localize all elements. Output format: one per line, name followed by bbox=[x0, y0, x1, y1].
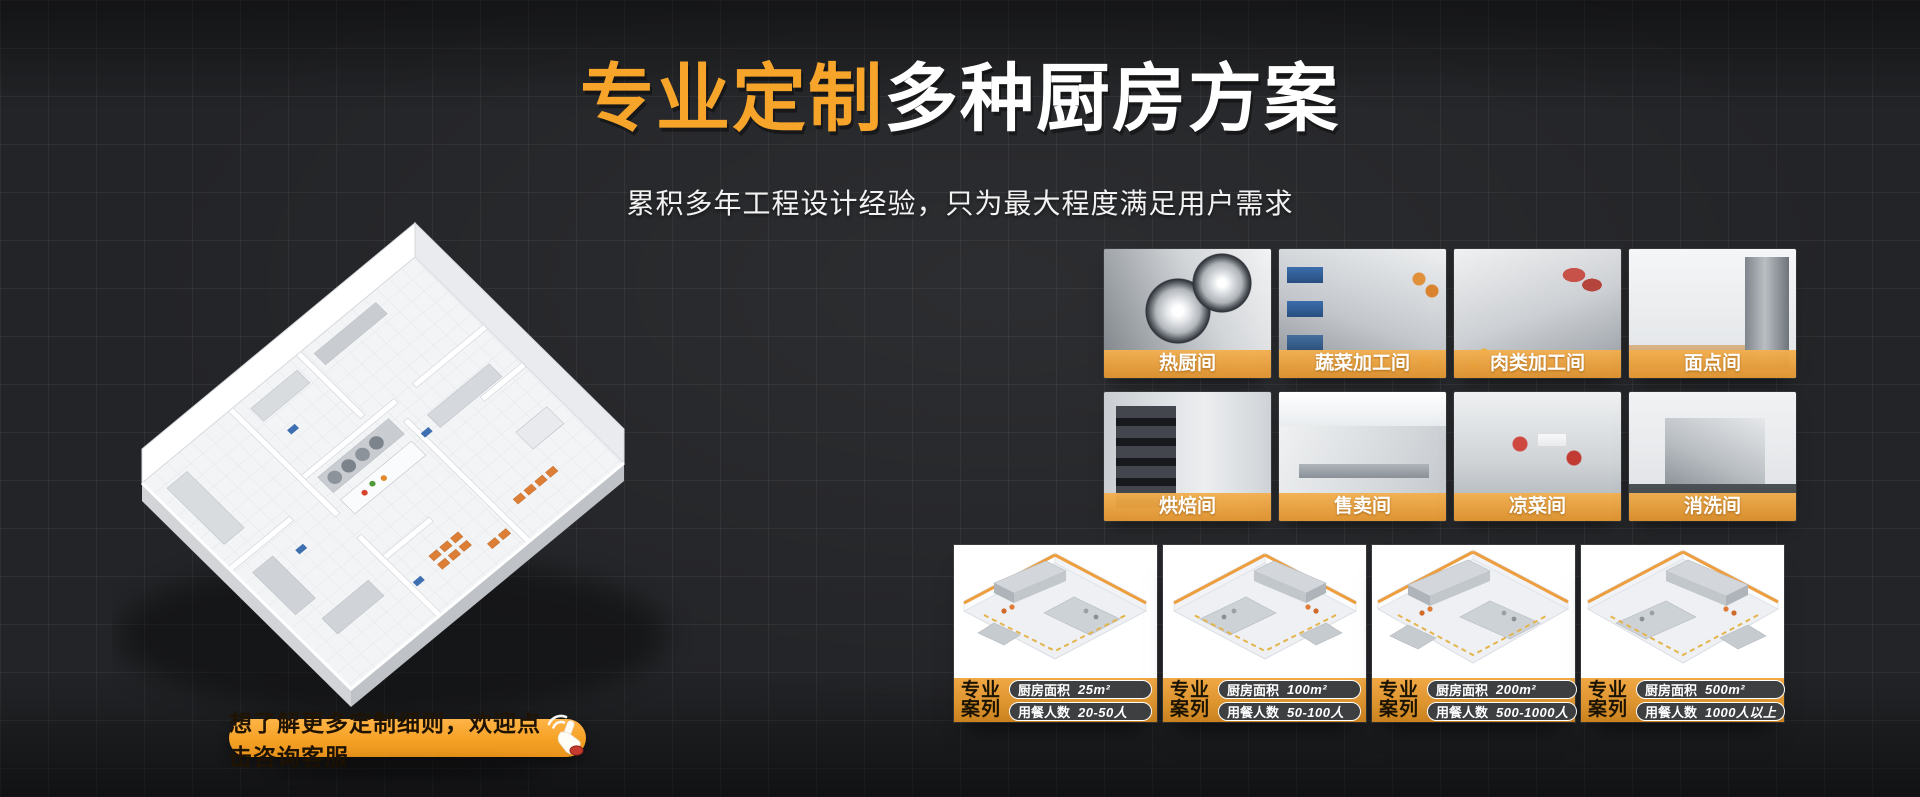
case-diners-pill: 用餐人数500-1000人 bbox=[1427, 702, 1577, 721]
room-card-sales: 售卖间 bbox=[1279, 392, 1446, 521]
room-card-cold-dish: 凉菜间 bbox=[1454, 392, 1621, 521]
room-card-meat: 肉类加工间 bbox=[1454, 249, 1621, 378]
case-tag: 专业 案列 bbox=[1379, 681, 1423, 719]
room-card-washing: 消洗间 bbox=[1629, 392, 1796, 521]
kitchen-floorplan-3d bbox=[112, 210, 812, 730]
page-title: 专业定制多种厨房方案 bbox=[0, 58, 1920, 139]
case-diners-pill: 用餐人数1000人以上 bbox=[1636, 702, 1785, 721]
case-diners-pill: 用餐人数50-100人 bbox=[1218, 702, 1361, 721]
room-label: 凉菜间 bbox=[1454, 493, 1621, 521]
hero-banner: 专业定制多种厨房方案 累积多年工程设计经验，只为最大程度满足用户需求 bbox=[0, 0, 1920, 797]
case-info-bar: 专业 案列 厨房面积100m² 用餐人数50-100人 bbox=[1163, 678, 1366, 722]
case-card-row: 专业 案列 厨房面积25m² 用餐人数20-50人 bbox=[954, 545, 1784, 722]
case-card-500m2: 专业 案列 厨房面积500m² 用餐人数1000人以上 bbox=[1581, 545, 1784, 722]
case-card-25m2: 专业 案列 厨房面积25m² 用餐人数20-50人 bbox=[954, 545, 1157, 722]
case-area-pill: 厨房面积200m² bbox=[1427, 680, 1577, 699]
case-photo bbox=[1581, 545, 1784, 678]
case-area-pill: 厨房面积500m² bbox=[1636, 680, 1785, 699]
case-photo bbox=[954, 545, 1157, 678]
case-info-bar: 专业 案列 厨房面积25m² 用餐人数20-50人 bbox=[954, 678, 1157, 722]
room-card-hot-kitchen: 热厨间 bbox=[1104, 249, 1271, 378]
case-tag: 专业 案列 bbox=[1588, 681, 1632, 719]
room-label: 热厨间 bbox=[1104, 350, 1271, 378]
case-diners-pill: 用餐人数20-50人 bbox=[1009, 702, 1152, 721]
case-photo bbox=[1163, 545, 1366, 678]
case-card-100m2: 专业 案列 厨房面积100m² 用餐人数50-100人 bbox=[1163, 545, 1366, 722]
case-card-200m2: 专业 案列 厨房面积200m² 用餐人数500-1000人 bbox=[1372, 545, 1575, 722]
room-label: 蔬菜加工间 bbox=[1279, 350, 1446, 378]
consult-cta-button[interactable]: 想了解更多定制细则，欢迎点击咨询客服 bbox=[229, 719, 586, 757]
room-label: 面点间 bbox=[1629, 350, 1796, 378]
room-card-vegetable: 蔬菜加工间 bbox=[1279, 249, 1446, 378]
case-info-bar: 专业 案列 厨房面积500m² 用餐人数1000人以上 bbox=[1581, 678, 1784, 722]
room-label: 消洗间 bbox=[1629, 493, 1796, 521]
room-card-grid: 热厨间 蔬菜加工间 肉类加工间 面点间 烘焙间 售卖间 凉菜间 消洗间 bbox=[1104, 249, 1796, 521]
floorplan-illustration bbox=[112, 210, 812, 745]
room-label: 售卖间 bbox=[1279, 493, 1446, 521]
page-title-rest: 多种厨房方案 bbox=[884, 57, 1340, 140]
case-area-pill: 厨房面积100m² bbox=[1218, 680, 1361, 699]
case-photo bbox=[1372, 545, 1575, 678]
room-card-pastry: 面点间 bbox=[1629, 249, 1796, 378]
room-label: 肉类加工间 bbox=[1454, 350, 1621, 378]
room-card-baking: 烘焙间 bbox=[1104, 392, 1271, 521]
consult-cta-label: 想了解更多定制细则，欢迎点击咨询客服 bbox=[229, 704, 586, 772]
case-area-pill: 厨房面积25m² bbox=[1009, 680, 1152, 699]
case-tag: 专业 案列 bbox=[1170, 681, 1214, 719]
click-hand-icon bbox=[538, 707, 590, 759]
page-title-highlight: 专业定制 bbox=[580, 57, 884, 140]
case-tag: 专业 案列 bbox=[961, 681, 1005, 719]
room-label: 烘焙间 bbox=[1104, 493, 1271, 521]
case-info-bar: 专业 案列 厨房面积200m² 用餐人数500-1000人 bbox=[1372, 678, 1575, 722]
